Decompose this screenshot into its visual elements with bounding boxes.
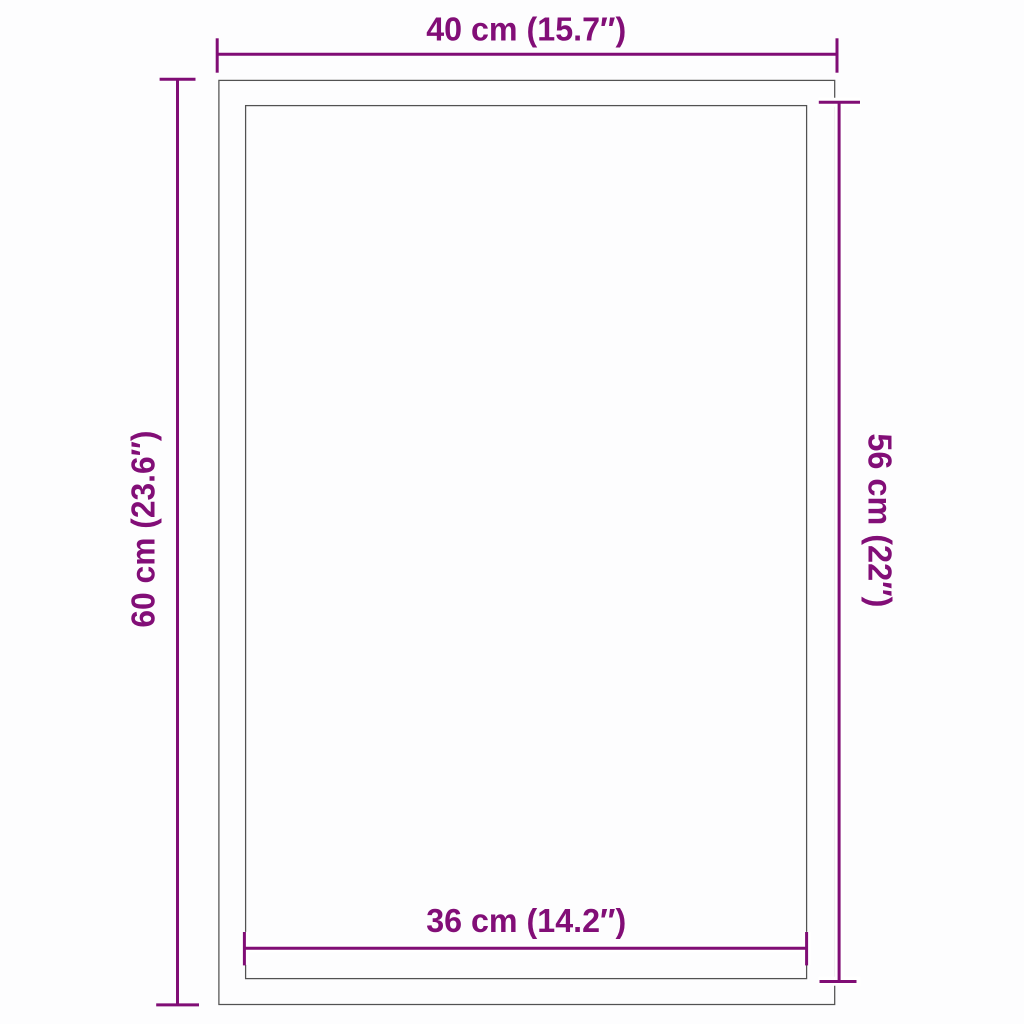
svg-text:40 cm (15.7″): 40 cm (15.7″)	[426, 10, 626, 47]
svg-text:56 cm (22″): 56 cm (22″)	[861, 433, 898, 607]
svg-text:36 cm (14.2″): 36 cm (14.2″)	[426, 902, 626, 939]
svg-text:60 cm (23.6″): 60 cm (23.6″)	[125, 431, 162, 628]
